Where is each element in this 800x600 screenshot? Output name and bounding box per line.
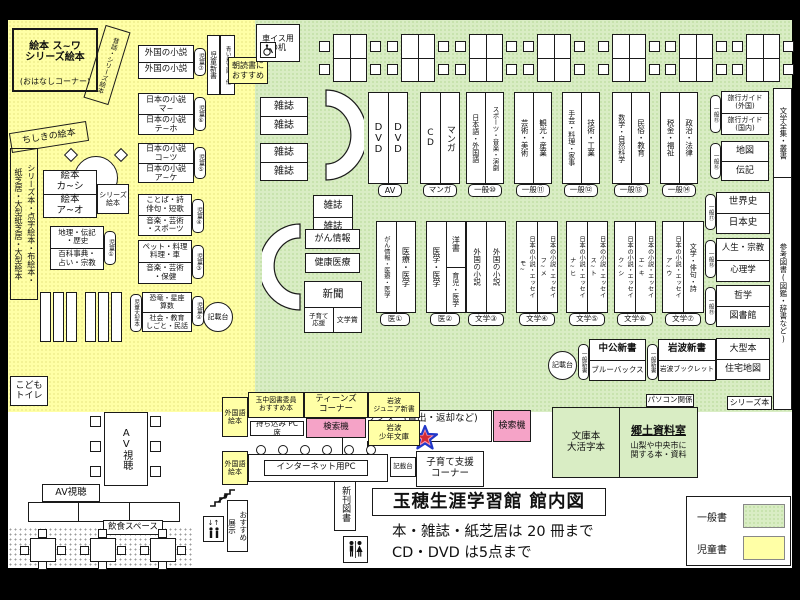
general-shelf-18-tab: 一般⑱ (705, 240, 716, 278)
medical-shelf-1-tag: 医① (380, 313, 410, 326)
health-care-rack: 健康医療 (305, 253, 360, 273)
shelf-label: 音楽・芸術 ・保健 (139, 262, 191, 284)
children-large-books-tab: 児童大型本 (130, 294, 142, 332)
shelf-label: 外国の小説 (467, 222, 486, 312)
shelf-label: 社会・教育 しごと・民話 (143, 312, 191, 332)
shelf-label: 政治・法律 (679, 93, 698, 183)
reference-strip: 文学全集・叢書 参考図書(図鑑・辞書など) (773, 88, 792, 410)
shelf-label: 恐竜・星座 算数 (143, 293, 191, 312)
shelf-label: 日本の小説・エッセイ ク~シ (615, 222, 635, 312)
search-terminal: 検索機 (493, 410, 531, 442)
kids-toilet: こども トイレ (10, 376, 48, 406)
general-shelf-14-tag: 一般⑭ (662, 184, 696, 197)
literature-shelf-4: 日本の小説・エッセイ モ~ 日本の小説・エッセイ フ~メ (516, 221, 558, 313)
general-shelf-13-tag: 一般⑬ (614, 184, 648, 197)
literature-shelf-7-tag: 文学⑦ (665, 313, 701, 326)
legend-children-label: 児童書 (697, 541, 727, 556)
curved-shelf (318, 88, 364, 182)
shelf-label: 日本の小説・エッセイ モ~ (517, 222, 537, 312)
children-shelf-3: ペット・料理 料理・車 音楽・芸術 ・保健 (138, 240, 192, 284)
shelf-label: 日本の小説・エッセイ ア~ウ (663, 222, 683, 312)
literature-collection-label: 文学全集・叢書 (774, 89, 791, 177)
children-shelf-6-tab: 児童⑥ (194, 97, 206, 131)
children-shelf-5: 日本の小説 コ~ツ 日本の小説 ア~ケ (138, 143, 194, 183)
dvd-label: DVD (388, 93, 408, 183)
general-shelf-14: 税金・福祉 政治・法律 (660, 92, 698, 184)
reference-books-label: 参考図書(図鑑・辞書など) (774, 177, 791, 409)
legend-general-swatch (743, 504, 785, 528)
shelf-label: 外国の小説 (139, 46, 193, 62)
literature-shelf-3-tag: 文学③ (468, 313, 504, 326)
children-shelf-7: 外国の小説 外国の小説 (138, 45, 194, 79)
shelf-label: 日本の小説 マ~ (139, 94, 193, 114)
shelf-label: ことば・詩 俳句・短歌 (139, 195, 191, 215)
children-shelf-5-tab: 児童⑤ (194, 147, 206, 179)
iwanami-junior-rack: 岩波 ジュニア新書 (368, 392, 420, 418)
shelf-label: 人生・宗教 (717, 239, 769, 260)
bookshelf (53, 292, 64, 342)
magazine-label: 雑誌 (261, 98, 307, 116)
storytelling-corner: 絵本 ス~ワ シリーズ絵本 (おはなしコーナー) (12, 28, 98, 92)
general-shelf-17-tab: 一般⑰ (705, 194, 716, 230)
reading-table (612, 34, 646, 82)
magazine-rack: 雑誌 雑誌 (260, 97, 308, 135)
reading-table (469, 34, 503, 82)
children-shelf-6: 日本の小説 マ~ 日本の小説 テ~ホ (138, 93, 194, 135)
shelf-label: 外国の小説 (486, 222, 506, 312)
magazine-label: 雑誌 (261, 144, 307, 162)
dining-space-label: 飲食スペース (103, 520, 163, 535)
shelf-label: 手芸・料理・家事 (563, 93, 581, 183)
recommended-display: おすすめ 展示 (227, 500, 248, 552)
wheelchair-icon (260, 42, 276, 58)
children-shelf-4: ことば・詩 俳句・短歌 音楽・芸術 ・スポーツ (138, 194, 192, 236)
bunko-large-print-label: 文庫本 大活字本 (553, 408, 619, 477)
shelf-label: 伝記 (722, 161, 768, 181)
shelf-label: スポーツ・音楽・演劇 (485, 93, 504, 183)
shelf-label: 観光・産業 (533, 93, 552, 183)
av-shelf-tag: AV (378, 184, 402, 197)
curved-shelf (262, 222, 308, 312)
medical-shelf-1: がん情報・医療・医学 医療・医学 (376, 221, 416, 313)
shelf-label: 日本の小説 コ~ツ (139, 144, 193, 163)
shelf-label: 絵本 カ~シ (44, 171, 96, 194)
iwanami-shonen-rack: 岩波 少年文庫 (368, 420, 420, 446)
general-shelf-16-tab: 一般⑯ (710, 143, 721, 179)
children-shelf-7-tab: 児童⑦ (194, 48, 206, 76)
writing-stand: 記載台 (548, 351, 577, 380)
shelf-label: 日本史 (717, 213, 769, 234)
shelf-label: 民俗・教育 (631, 93, 650, 183)
shelf-label: 芸術・美術 (515, 93, 533, 183)
literary-award-label: 文学賞 (333, 308, 362, 332)
children-shelf-1-tab: 児童① (104, 231, 116, 265)
shelf-label: 医療・医学 (396, 222, 416, 312)
general-shelf-13: 数学・自然科学 民俗・教育 (612, 92, 650, 184)
new-books-rack: 新刊図書 (334, 477, 356, 531)
iwanami-shinsho-shelf: 岩波新書 岩波ブックレット (658, 339, 716, 381)
shelf-label: 図書館 (717, 306, 769, 327)
map-title: 玉穂生涯学習館 館内図 (372, 488, 606, 516)
series-braille-kamishibai-shelf: シリーズ本・点字絵本・布絵本・ 紙芝居・大型紙芝居・大型絵本 (10, 148, 38, 300)
literature-shelf-7: 日本の小説・エッセイ ア~ウ 文学・俳句・詩 (662, 221, 704, 313)
shelf-label: 音楽・芸術 ・スポーツ (139, 215, 191, 236)
shelf-label: がん情報・医療・医学 (377, 222, 396, 312)
shelf-label: 旅行ガイド (外国) (722, 92, 768, 113)
av-booth-table (28, 502, 180, 522)
general-shelf-10-tag: 一般⑩ (468, 184, 502, 197)
children-shelf-2: 恐竜・星座 算数 社会・教育 しごと・民話 (142, 292, 192, 332)
shelf-label: 絵本 ア~オ (44, 194, 96, 218)
shelf-label: 地図 (722, 142, 768, 161)
general-shinsho-tab: 一般新書 (578, 344, 589, 380)
picture-books-label: 絵本 ス~ワ シリーズ絵本 (14, 30, 96, 74)
series-picture-book-shelf: シリーズ 絵本 (97, 184, 129, 214)
shelf-label: 日本の小説・エッセイ ナ~ヒ (567, 222, 587, 312)
general-shelf-15: 旅行ガイド (外国) 旅行ガイド (国内) (721, 91, 769, 135)
children-shelf-3-tab: 児童③ (192, 245, 204, 279)
newspaper-label: 新聞 (305, 282, 361, 307)
legend-children-swatch (743, 536, 785, 560)
general-shelf-19: 哲学 図書館 (716, 285, 770, 327)
foreign-picture-books-rack: 外国語 絵本 (222, 397, 248, 437)
manga-shelf-tag: マンガ (423, 184, 457, 197)
magazine-label: 雑誌 (314, 196, 352, 217)
elevator-icon: ↓↑ (203, 516, 224, 542)
parenting-support-label: 子育て 応援 (305, 308, 333, 332)
legend-general-label: 一般書 (697, 509, 727, 524)
general-shelf-11-tag: 一般⑪ (516, 184, 550, 197)
children-shelf-4-tab: 児童④ (192, 199, 204, 233)
shelf-label: 医学・医学 (427, 222, 446, 312)
shelf-label: 百科事典・ 占い・宗教 (51, 248, 103, 270)
general-shelf-16: 地図 伝記 (721, 141, 769, 181)
foreign-picture-books-rack: 外国語 絵本 (222, 451, 248, 485)
literature-shelf-5-tag: 文学⑤ (569, 313, 605, 326)
cd-manga-shelf: CD マンガ (420, 92, 460, 184)
children-shinsho-shelf: 児童新書 (207, 35, 220, 95)
literature-shelf-6: 日本の小説・エッセイ ク~シ 日本の小説・エッセイ エ~キ (614, 221, 656, 313)
medical-shelf-2: 医学・医学 洋書 育児・医学 (426, 221, 466, 313)
reading-table (333, 34, 367, 82)
shelf-label: 岩波ブックレット (659, 360, 715, 381)
shelf-label: 数学・自然科学 (613, 93, 631, 183)
general-shelf-18: 人生・宗教 心理学 (716, 238, 770, 282)
newspaper-rack: 新聞 子育て 応援 文学賞 (304, 281, 362, 333)
shelf-label: 旅行ガイド (国内) (722, 113, 768, 135)
bookshelf (85, 292, 96, 342)
local-materials-room: 文庫本 大活字本 郷土資料室 山梨や中央市に 関する本・資料 (552, 407, 698, 478)
general-shelf-12-tag: 一般⑫ (564, 184, 598, 197)
literature-shelf-3: 外国の小説 外国の小説 (466, 221, 506, 313)
shelf-label: 哲学 (717, 286, 769, 306)
search-terminal: 検索機 (306, 418, 366, 438)
general-shelf-15-tab: 一般⑮ (710, 95, 721, 133)
series-books-tag: シリーズ本 (727, 396, 772, 410)
floor-map: 絵本 ス~ワ シリーズ絵本 (おはなしコーナー) 昔話・シリーズ絵本 ちしきの絵… (0, 0, 800, 600)
shelf-label: 日本の小説 テ~ホ (139, 114, 193, 135)
literature-shelf-6-tag: 文学⑥ (617, 313, 653, 326)
av-booth-label: AV視聴 (42, 484, 100, 502)
shelf-label: 税金・福祉 (661, 93, 679, 183)
chuko-shinsho-shelf: 中公新書 ブルーバックス (589, 339, 646, 381)
shelf-label: 外国の小説 (139, 62, 193, 79)
general-shelf-12: 手芸・料理・家事 技術・工業 (562, 92, 600, 184)
shelf-label: 技術・工業 (581, 93, 600, 183)
medical-shelf-2-tag: 医② (430, 313, 460, 326)
magazine-rack: 雑誌 雑誌 (260, 143, 308, 181)
shelf-label: 大型本 (717, 339, 769, 359)
shelf-label: 地理・伝記 ・歴史 (51, 227, 103, 248)
general-shelf-11: 芸術・美術 観光・産業 (514, 92, 552, 184)
shelf-label: 心理学 (717, 260, 769, 282)
shelf-label: 日本語・外国語 (467, 93, 485, 183)
shelf-label: 日本の小説・エッセイ ス~ト (587, 222, 608, 312)
shelf-label: 中公新書 (590, 340, 645, 360)
general-shelf-17: 世界史 日本史 (716, 192, 770, 234)
internet-pc-label: インターネット用PC (264, 460, 368, 476)
cd-label: CD (421, 93, 440, 183)
loan-rule-av: CD・DVD は5点まで (392, 541, 532, 562)
writing-stand: 記載台 (390, 457, 416, 477)
teens-corner: ティーンズ コーナー (304, 392, 368, 418)
magazine-label: 雑誌 (261, 162, 307, 181)
bookshelf (98, 292, 109, 342)
bookshelf (111, 292, 122, 342)
literature-shelf-5: 日本の小説・エッセイ ナ~ヒ 日本の小説・エッセイ ス~ト (566, 221, 608, 313)
shelf-label: 世界史 (717, 193, 769, 213)
loan-rule-books: 本・雑誌・紙芝居は 20 冊まで (392, 520, 594, 541)
reading-table (679, 34, 713, 82)
local-materials-desc: 山梨や中央市に 関する本・資料 (631, 441, 687, 459)
general-shelf-10: 日本語・外国語 スポーツ・音楽・演劇 (466, 92, 504, 184)
large-books-shelf: 大型本 住宅地図 (716, 338, 770, 380)
parenting-support-corner: 子育て支援 コーナー (416, 451, 484, 487)
cancer-info-rack: がん情報 (305, 229, 360, 249)
storytelling-corner-label: (おはなしコーナー) (14, 74, 96, 90)
local-materials-room-label: 郷土資料室 (631, 425, 686, 438)
byod-pc-seat: 持ち込み PC 席 (250, 421, 304, 436)
reading-table (537, 34, 571, 82)
shelf-label: ペット・料理 料理・車 (139, 241, 191, 262)
dvd-shelf: DVD DVD (368, 92, 408, 184)
magazine-label: 雑誌 (261, 116, 307, 135)
av-viewing-table: AV視聴 (104, 412, 148, 486)
bookshelf (66, 292, 77, 342)
shelf-label: ブルーバックス (590, 360, 645, 381)
manga-label: マンガ (440, 93, 460, 183)
children-shelf-1: 地理・伝記 ・歴史 百科事典・ 占い・宗教 (50, 226, 104, 270)
children-shelf-2-tab: 児童② (192, 296, 204, 326)
shelf-label: 文学・俳句・詩 (683, 222, 704, 312)
writing-stand: 記載台 (203, 302, 233, 332)
picture-book-shelf: 絵本 カ~シ 絵本 ア~オ (43, 170, 97, 218)
shelf-label: 日本の小説 ア~ケ (139, 163, 193, 183)
literature-shelf-4-tag: 文学④ (519, 313, 555, 326)
dvd-label: DVD (369, 93, 388, 183)
school-recommend-rack: 玉中図書委員 おすすめ本 (248, 392, 304, 418)
reading-table (746, 34, 780, 82)
shelf-label: 岩波新書 (659, 340, 715, 360)
general-shelf-19-tab: 一般⑲ (705, 287, 716, 325)
bookshelf (40, 292, 51, 342)
pc-area-tag: パソコン関係 (646, 394, 694, 407)
restroom-icon (343, 536, 368, 563)
reading-table (401, 34, 435, 82)
shelf-label: 洋書 (447, 222, 466, 267)
shelf-label: 育児・医学 (447, 267, 466, 313)
general-shinsho-tab: 一般新書 (647, 344, 658, 380)
shelf-label: 日本の小説・エッセイ フ~メ (537, 222, 558, 312)
shelf-label: 住宅地図 (717, 359, 769, 380)
shelf-label: 日本の小説・エッセイ エ~キ (635, 222, 656, 312)
